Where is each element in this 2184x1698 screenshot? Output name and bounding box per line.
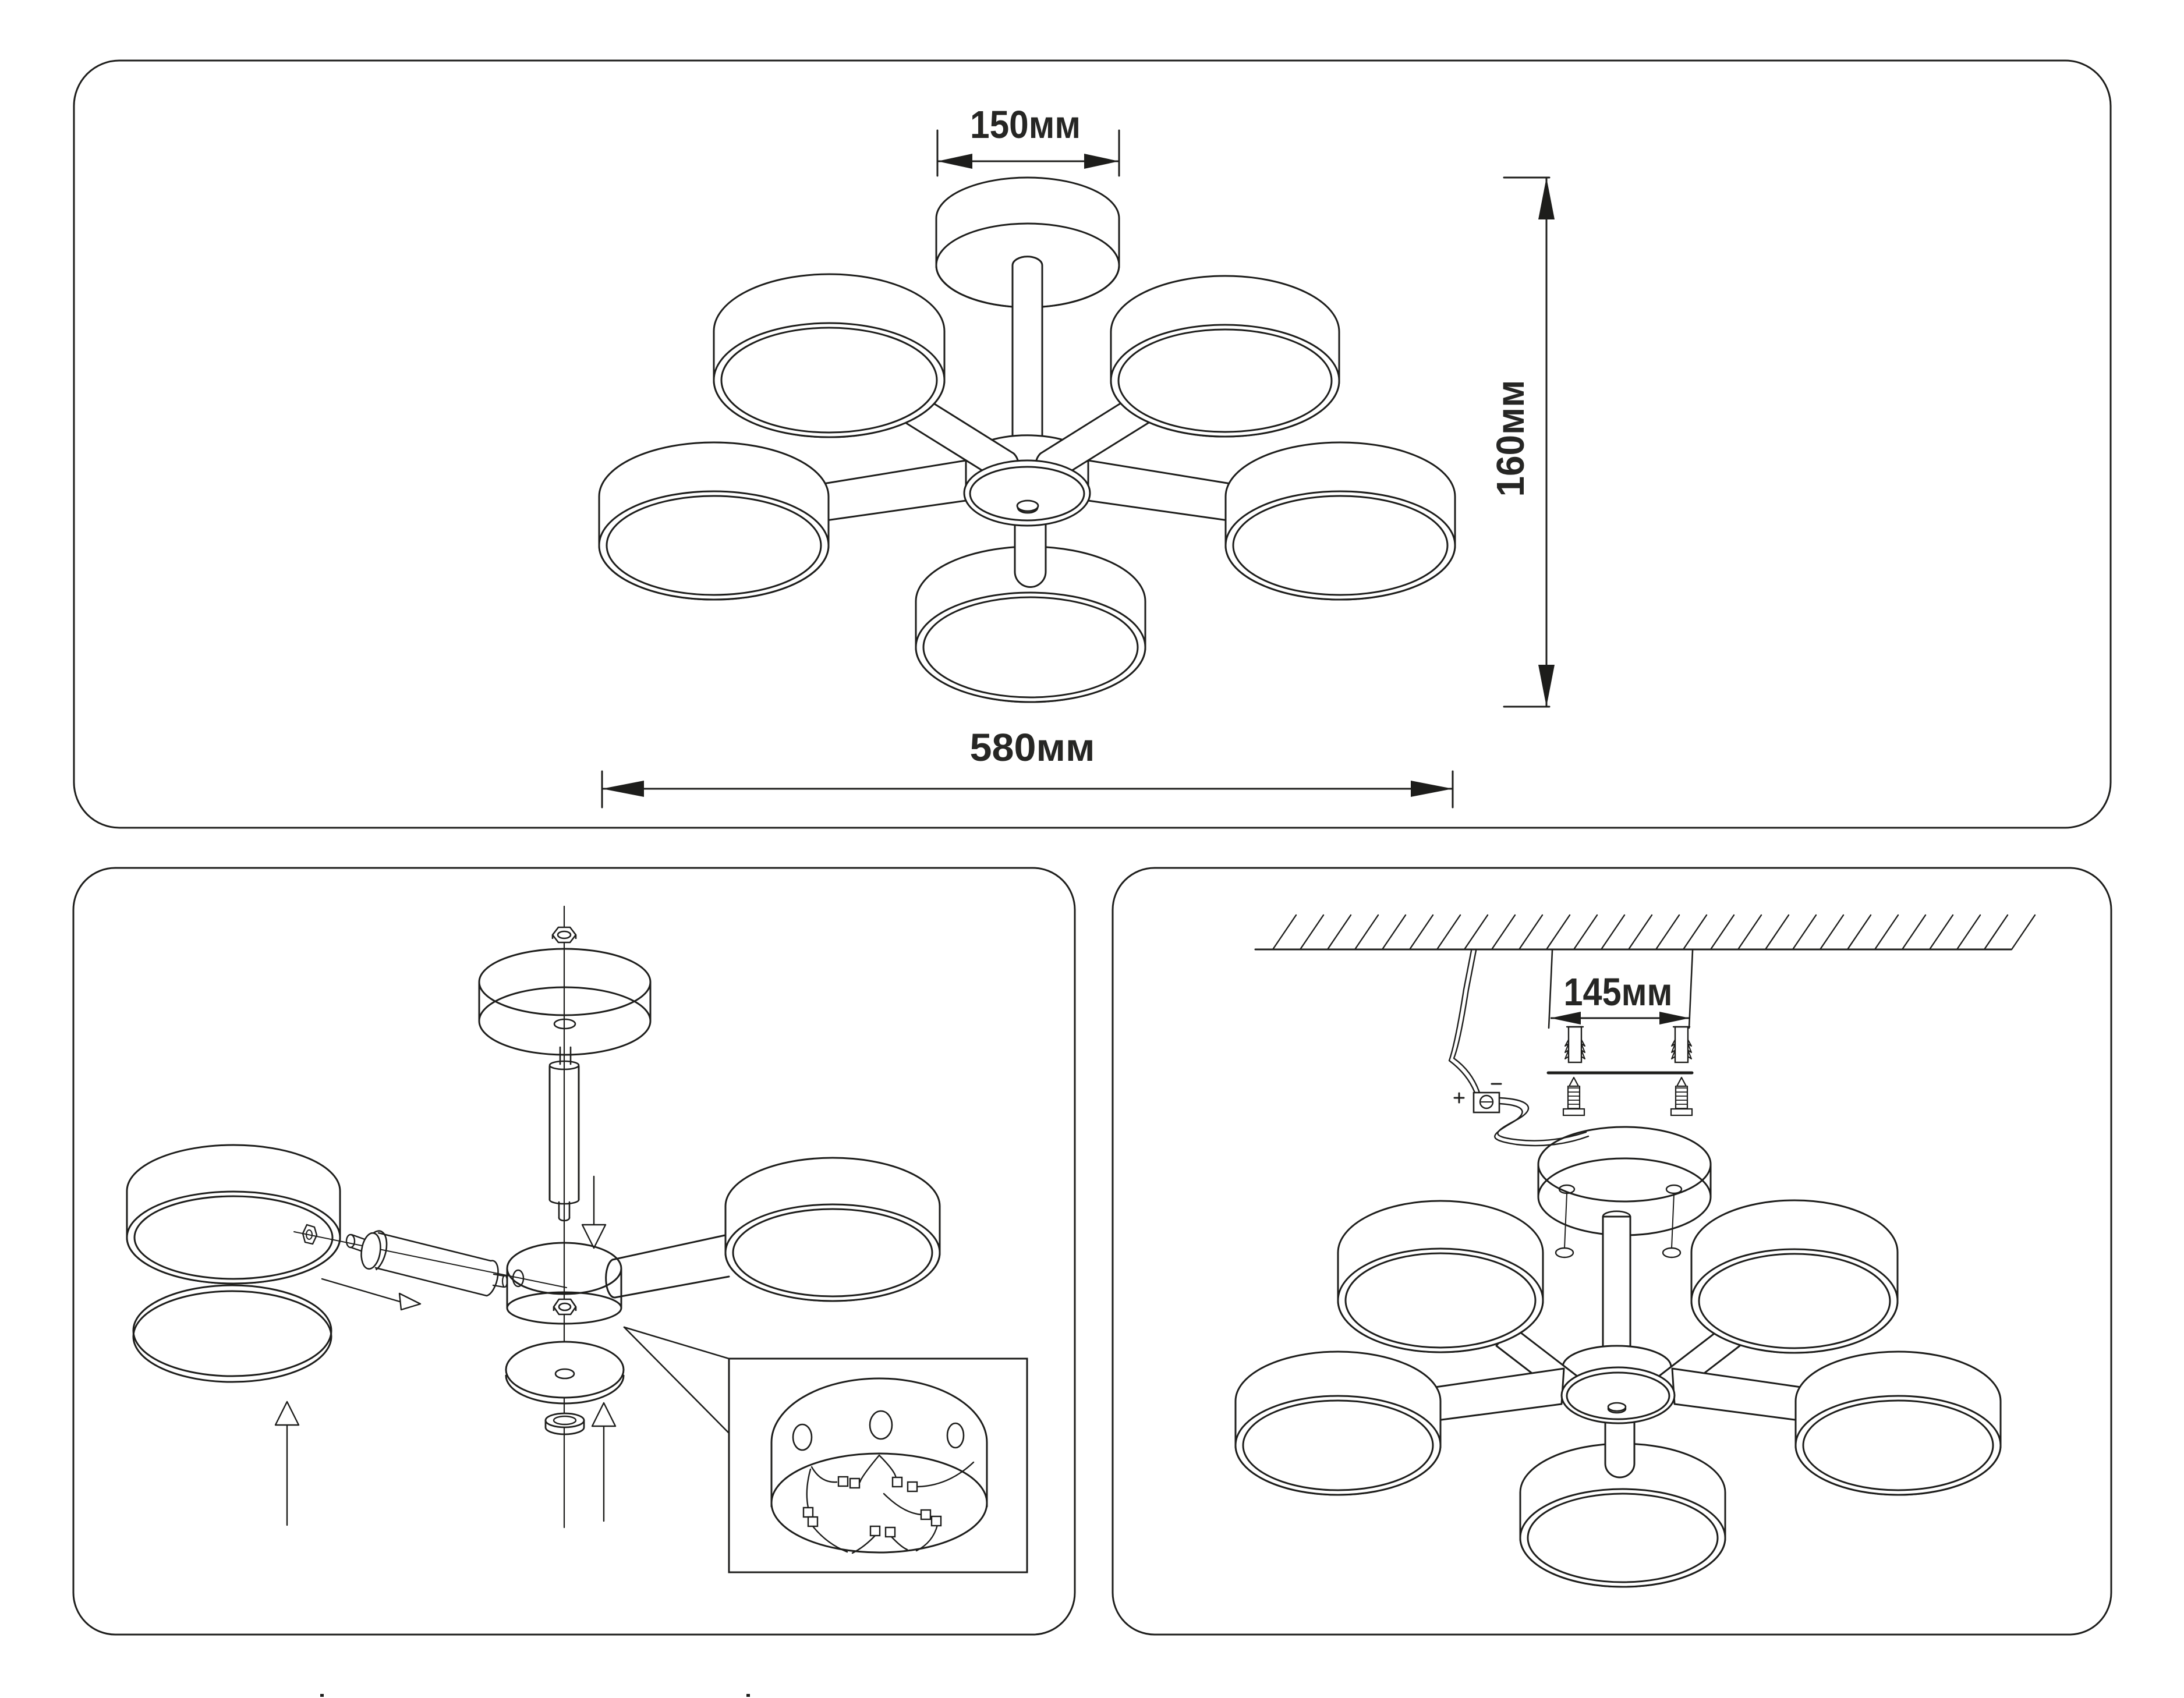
svg-text:160мм: 160мм xyxy=(1489,380,1532,497)
svg-text:150мм: 150мм xyxy=(970,103,1081,147)
svg-text:580мм: 580мм xyxy=(970,726,1095,770)
svg-text:145мм: 145мм xyxy=(1564,970,1673,1014)
